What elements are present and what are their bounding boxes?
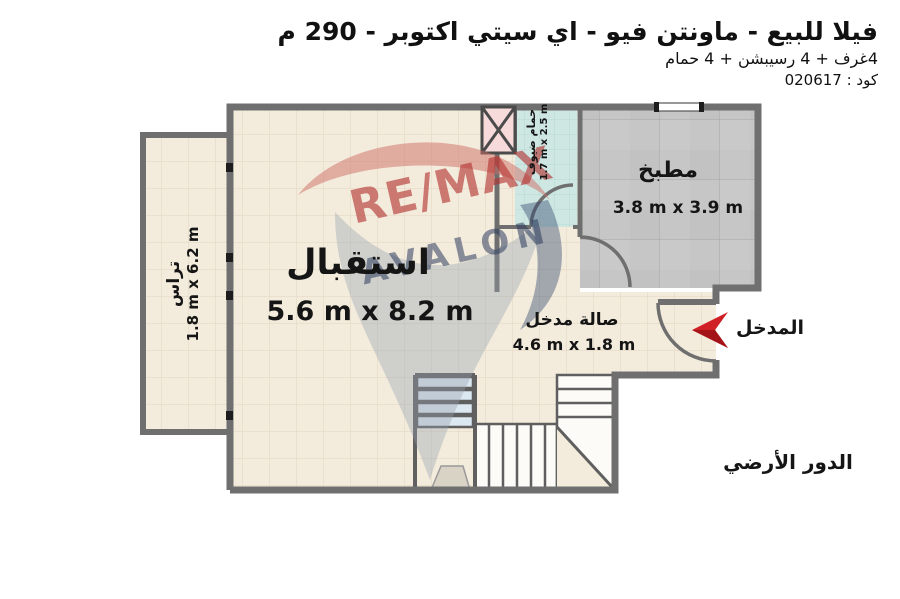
room-label-bathroom: حمام ضيوف [526,81,539,203]
page-title: فيلا للبيع - ماونتن فيو - اي سيتي اكتوبر… [278,16,878,47]
room-dims-terrace: 1.8 m x 6.2 m [184,204,202,364]
floor-plan-page: RE/MAX AVALON استقبال 5.6 m x 8.2 m مطبخ… [0,0,900,599]
room-dims-bathroom: 1.7 m x 2.5 m [539,81,551,203]
kitchen-window [656,103,702,111]
entrance-label: المدخل [728,317,812,339]
room-label-entry-hall: صالة مدخل [492,310,652,330]
floor-level-label: الدور الأرضي [706,450,870,474]
room-dims-entry-hall: 4.6 m x 1.8 m [494,335,654,354]
listing-code: كود : 020617 [278,71,878,90]
room-dims-kitchen: 3.8 m x 3.9 m [598,198,758,218]
shaft-x-icon [482,107,515,153]
listing-header: فيلا للبيع - ماونتن فيو - اي سيتي اكتوبر… [278,16,878,90]
room-label-kitchen: مطبخ [598,158,738,183]
room-label-terrace: تراس [164,204,184,364]
page-subtitle: 4غرف + 4 رسيبشن + 4 حمام [278,49,878,69]
room-label-reception: استقبال [258,243,458,283]
room-dims-reception: 5.6 m x 8.2 m [250,296,490,327]
